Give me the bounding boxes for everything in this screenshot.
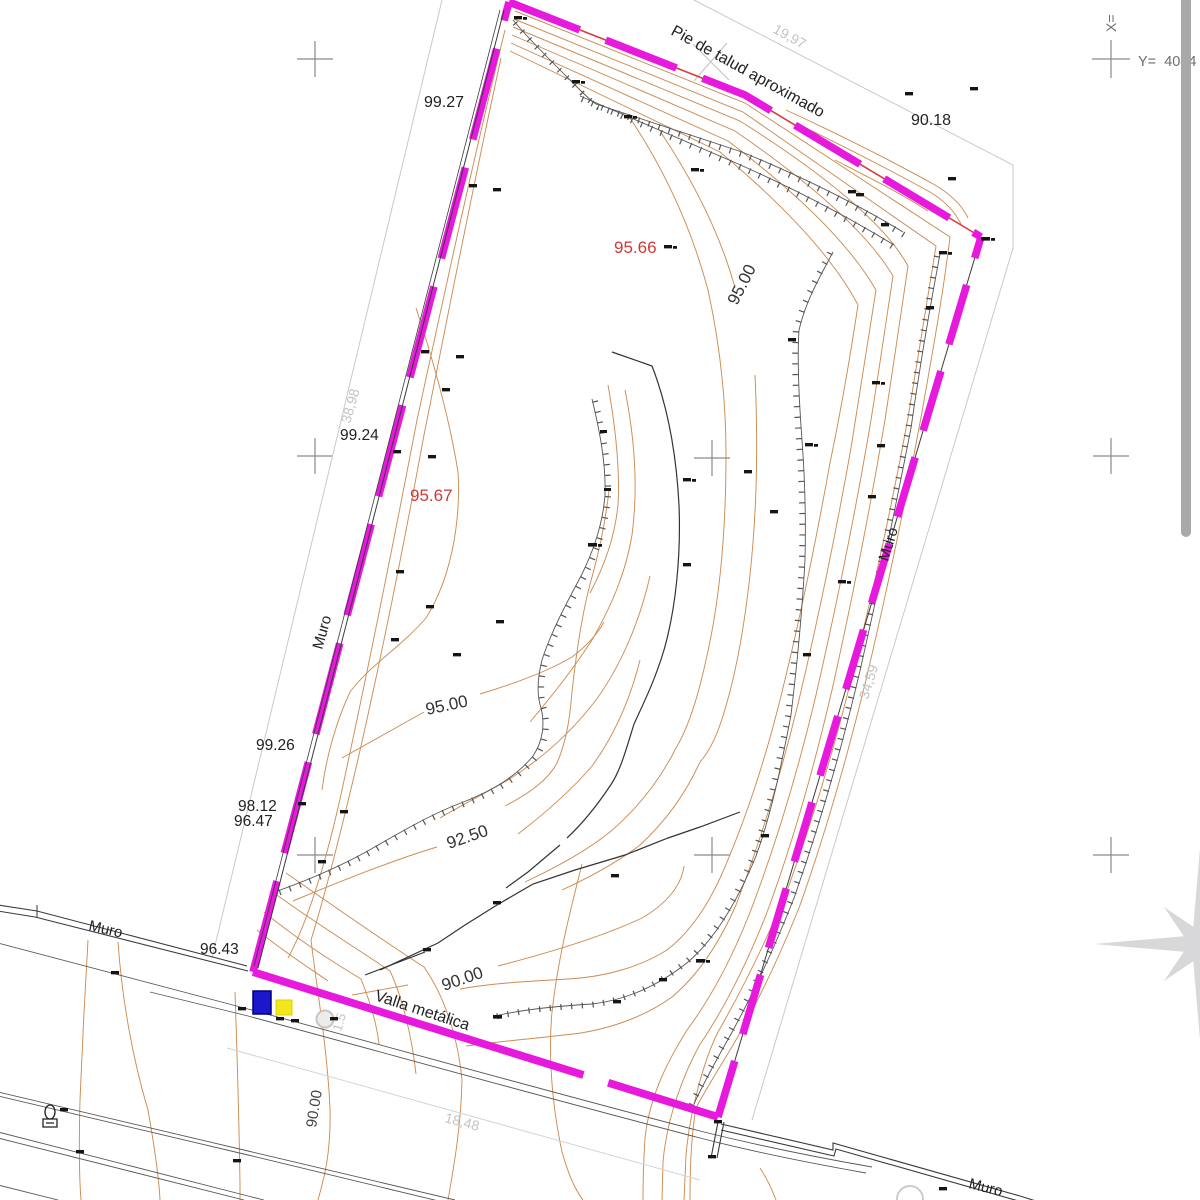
svg-text:X=: X= <box>1103 14 1119 32</box>
svg-text:99.24: 99.24 <box>340 427 379 444</box>
svg-text:90.18: 90.18 <box>911 112 951 129</box>
svg-text:96.47: 96.47 <box>234 813 273 830</box>
svg-text:99.27: 99.27 <box>424 94 464 111</box>
svg-text:99.26: 99.26 <box>256 737 295 754</box>
svg-text:95.66: 95.66 <box>614 238 657 257</box>
svg-text:95.67: 95.67 <box>410 486 453 505</box>
svg-text:96.43: 96.43 <box>200 941 239 958</box>
